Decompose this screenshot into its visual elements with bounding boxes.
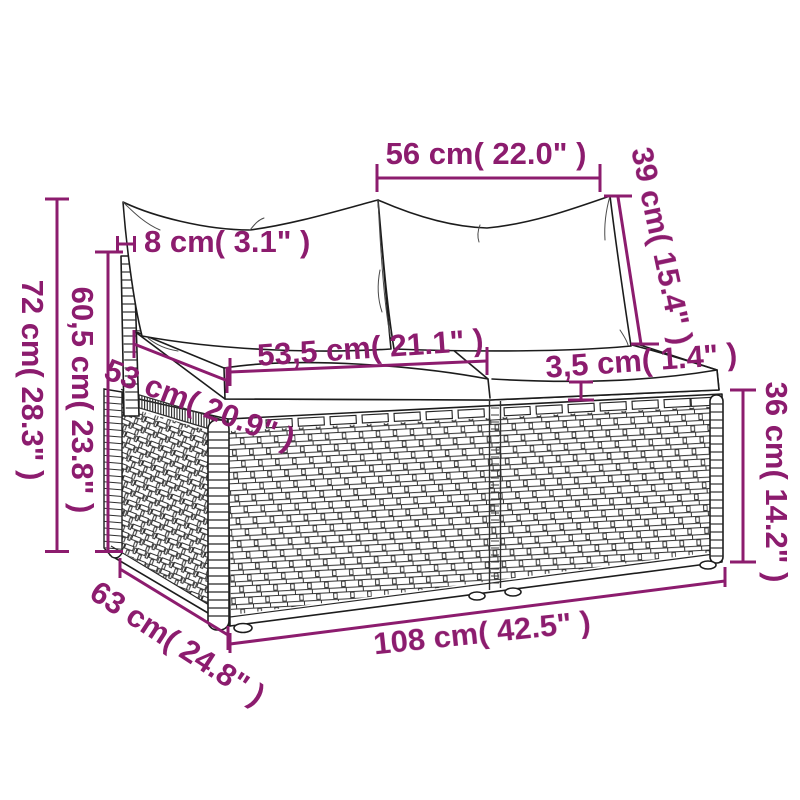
- svg-text:60,5 cm( 23.8" ): 60,5 cm( 23.8" ): [65, 287, 100, 514]
- svg-text:72 cm( 28.3" ): 72 cm( 28.3" ): [15, 280, 50, 481]
- svg-text:56 cm( 22.0" ): 56 cm( 22.0" ): [386, 136, 587, 171]
- svg-text:36 cm( 14.2" ): 36 cm( 14.2" ): [759, 382, 794, 583]
- svg-text:8 cm( 3.1" ): 8 cm( 3.1" ): [144, 224, 310, 259]
